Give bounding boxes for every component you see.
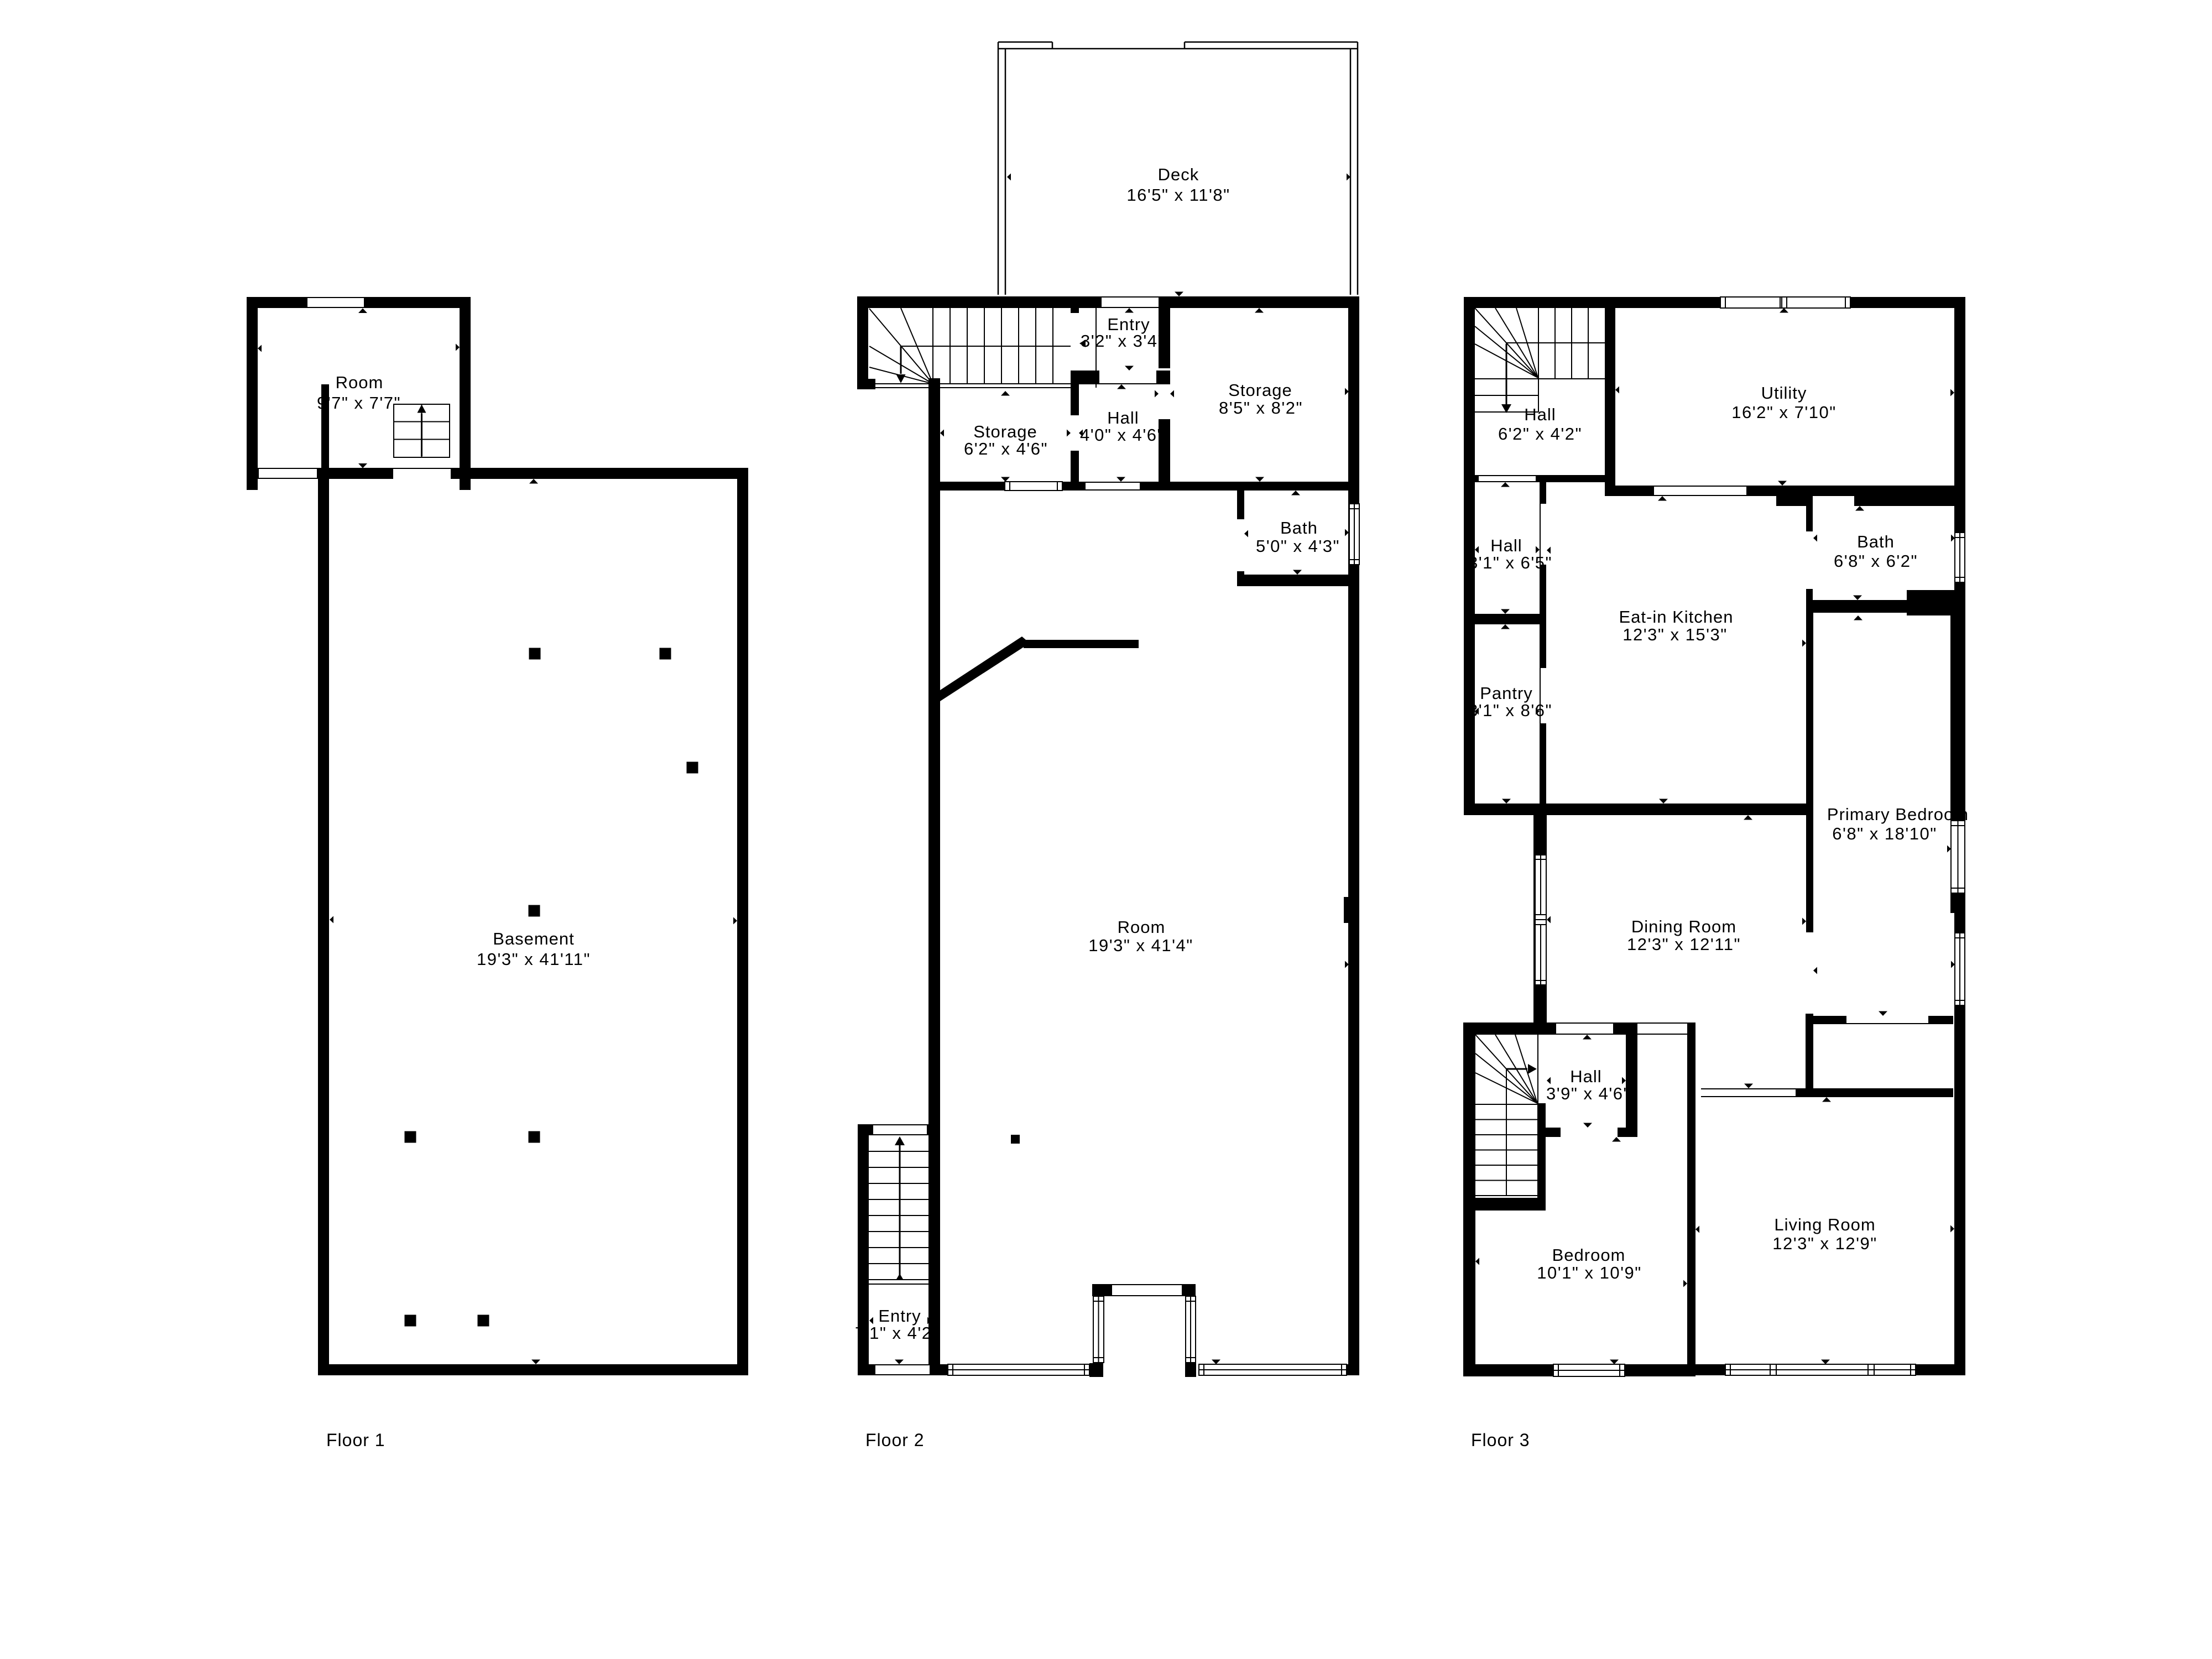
svg-text:Primary Bedroom: Primary Bedroom: [1827, 805, 1969, 824]
svg-text:Floor 1: Floor 1: [326, 1430, 385, 1450]
svg-text:5'0" x 4'3": 5'0" x 4'3": [1256, 536, 1340, 556]
svg-text:8'5" x 8'2": 8'5" x 8'2": [1219, 398, 1303, 418]
svg-text:Living Room: Living Room: [1774, 1215, 1875, 1234]
svg-text:Utility: Utility: [1761, 383, 1807, 403]
svg-text:Eat-in Kitchen: Eat-in Kitchen: [1619, 607, 1734, 627]
svg-text:Dining Room: Dining Room: [1631, 917, 1736, 936]
svg-text:Pantry: Pantry: [1480, 684, 1533, 703]
svg-text:12'3" x 12'9": 12'3" x 12'9": [1772, 1234, 1877, 1253]
svg-text:10'1" x 10'9": 10'1" x 10'9": [1537, 1263, 1642, 1282]
svg-text:12'3" x 12'11": 12'3" x 12'11": [1627, 935, 1741, 954]
svg-text:Basement: Basement: [493, 929, 575, 948]
svg-text:Storage: Storage: [973, 422, 1037, 441]
svg-text:Hall: Hall: [1490, 536, 1522, 555]
svg-text:6'8" x 18'10": 6'8" x 18'10": [1832, 824, 1937, 843]
svg-text:Bath: Bath: [1280, 518, 1318, 538]
svg-text:Entry: Entry: [878, 1306, 921, 1326]
svg-text:16'2" x 7'10": 16'2" x 7'10": [1731, 403, 1837, 422]
svg-text:19'3" x 41'11": 19'3" x 41'11": [477, 950, 591, 969]
svg-text:Floor 3: Floor 3: [1471, 1430, 1530, 1450]
svg-text:Bedroom: Bedroom: [1552, 1245, 1626, 1265]
svg-text:4'0" x 4'6": 4'0" x 4'6": [1080, 425, 1164, 445]
svg-text:6'8" x 6'2": 6'8" x 6'2": [1834, 551, 1918, 571]
svg-text:Floor 2: Floor 2: [865, 1430, 925, 1450]
svg-text:Hall: Hall: [1524, 405, 1556, 424]
svg-text:12'3" x 15'3": 12'3" x 15'3": [1623, 625, 1728, 644]
svg-text:19'3" x 41'4": 19'3" x 41'4": [1088, 936, 1193, 955]
svg-text:Hall: Hall: [1107, 408, 1139, 427]
svg-text:Storage: Storage: [1228, 380, 1292, 400]
svg-text:Room: Room: [336, 373, 384, 392]
svg-text:6'2" x 4'2": 6'2" x 4'2": [1498, 424, 1582, 444]
svg-text:Bath: Bath: [1857, 532, 1895, 551]
svg-text:Deck: Deck: [1158, 165, 1199, 184]
svg-text:3'9" x 4'6": 3'9" x 4'6": [1546, 1084, 1630, 1103]
svg-text:Hall: Hall: [1570, 1067, 1601, 1086]
svg-text:6'2" x 4'6": 6'2" x 4'6": [964, 439, 1048, 458]
svg-text:Room: Room: [1118, 917, 1166, 937]
svg-text:9'7" x 7'7": 9'7" x 7'7": [317, 393, 401, 413]
svg-text:3'2" x 3'4": 3'2" x 3'4": [1081, 331, 1165, 351]
svg-text:16'5" x 11'8": 16'5" x 11'8": [1126, 185, 1230, 205]
